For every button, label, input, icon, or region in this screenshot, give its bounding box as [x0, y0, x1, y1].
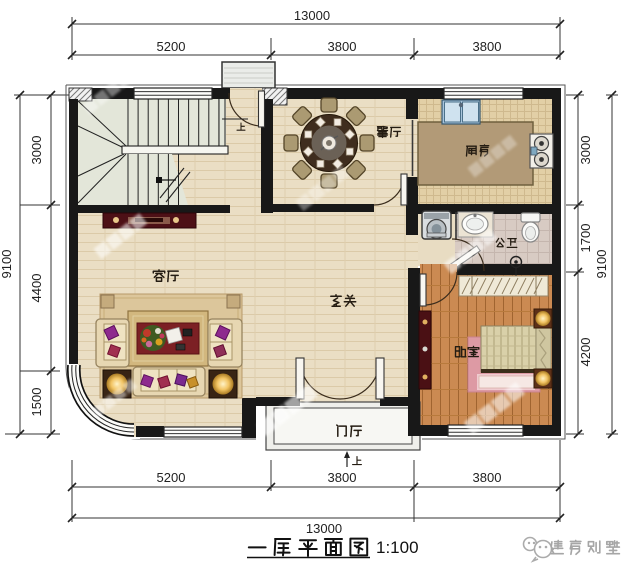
svg-text:3000: 3000: [29, 136, 44, 165]
svg-text:4200: 4200: [578, 338, 593, 367]
svg-text:3800: 3800: [328, 470, 357, 485]
svg-text:5200: 5200: [157, 39, 186, 54]
svg-text:1500: 1500: [29, 388, 44, 417]
svg-text:3800: 3800: [328, 39, 357, 54]
svg-text:3800: 3800: [473, 39, 502, 54]
svg-text:5200: 5200: [157, 470, 186, 485]
svg-text:13000: 13000: [294, 8, 330, 23]
svg-text:13000: 13000: [306, 521, 342, 536]
svg-text:9100: 9100: [0, 250, 14, 279]
svg-text:3000: 3000: [578, 136, 593, 165]
svg-text:1:100: 1:100: [376, 538, 419, 557]
svg-text:9100: 9100: [594, 250, 609, 279]
svg-text:4400: 4400: [29, 274, 44, 303]
svg-text:1700: 1700: [578, 224, 593, 253]
svg-text:3800: 3800: [473, 470, 502, 485]
